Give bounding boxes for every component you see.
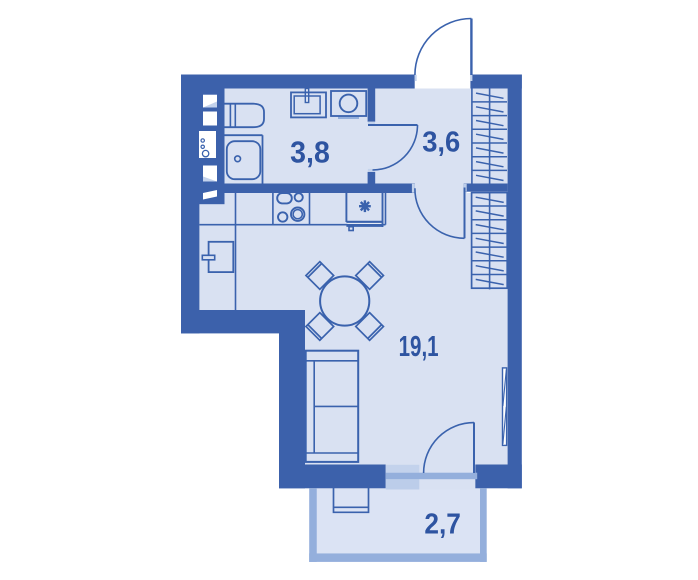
svg-text:19,1: 19,1 <box>399 331 439 363</box>
svg-text:3,8: 3,8 <box>290 136 330 170</box>
svg-text:3,6: 3,6 <box>422 127 460 159</box>
svg-text:2,7: 2,7 <box>424 509 461 541</box>
